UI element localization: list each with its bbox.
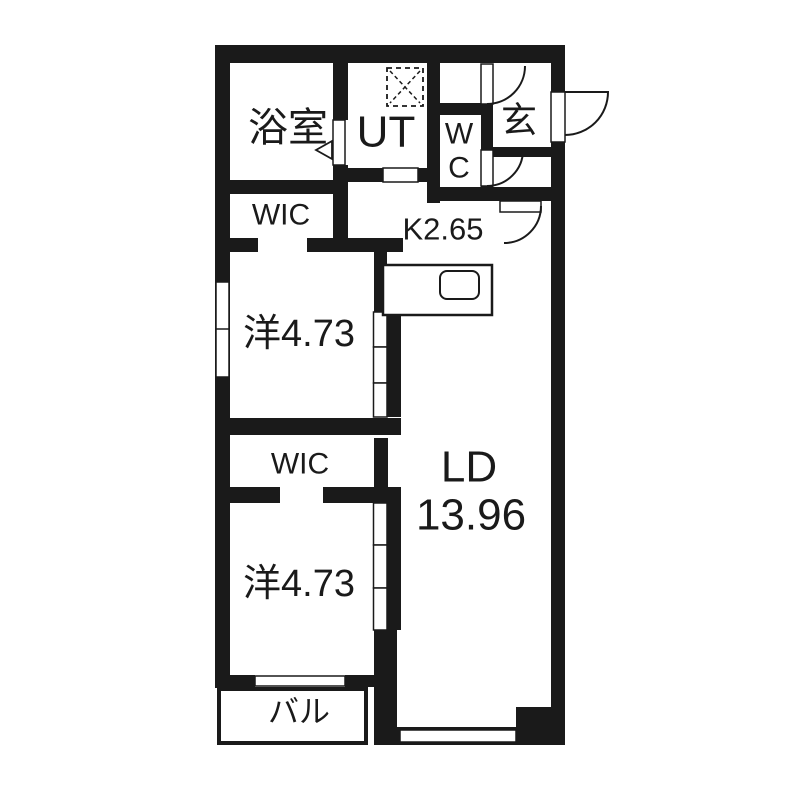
wall-ut-right [427,63,440,203]
toilet-label-c: C [448,152,470,185]
floor-plan-page: 浴室 UT W C 玄 K2.65 WIC 洋4.73 WIC LD 13.96… [0,0,800,800]
wall-room2-bottom-left [228,675,255,687]
hall-door-leaf [500,201,541,212]
wall-right-upper [551,45,565,92]
wall-closet-wc-divider [440,103,481,115]
kitchen-label: K2.65 [402,212,483,247]
wall-hall-bottom [427,187,565,201]
ld-bottom-window [400,730,516,742]
closet-door-leaf [481,64,493,104]
wall-top [215,45,565,63]
entrance-door-slab [551,92,565,142]
sliding-panel-upper-2 [374,347,388,383]
wic-upper-label: WIC [252,199,310,232]
wall-wc-right-mid [481,104,493,150]
wall-bath-ut-upper [333,63,348,120]
wall-room2-bottom-right [345,675,374,687]
living-dining-area: 13.96 [416,491,526,540]
living-dining-label: LD [441,443,497,492]
wall-mid-slide-upper [387,312,401,417]
western-room-lower-label: 洋4.73 [243,563,355,605]
kitchen-sink [440,271,479,299]
wall-ut-bottom-right [418,168,427,182]
wall-room1-top-left [228,238,258,252]
toilet-label-w: W [445,118,474,151]
wall-mid-slide-lower [387,503,401,630]
utility-label: UT [357,108,416,157]
balcony-window [255,676,345,686]
wall-wic-lower-bottom-right [323,487,401,503]
wall-right-lower [551,142,565,745]
wall-wic-lower-bottom-left [228,487,280,503]
wall-room1-top-right [307,238,403,252]
balcony-label: バル [268,695,330,730]
western-room-upper-label: 洋4.73 [243,313,355,355]
entrance-label: 玄 [501,100,537,141]
ut-door-opening [383,168,418,182]
wall-room1-bottom [228,418,401,435]
bathroom-door-leaf [333,120,345,165]
bathroom-label: 浴室 [248,106,328,150]
floor-plan-drawing: 浴室 UT W C 玄 K2.65 WIC 洋4.73 WIC LD 13.96… [0,0,800,800]
wic-lower-label: WIC [271,448,329,481]
wall-bottom-right-block [516,707,565,745]
sliding-panel-lower-2 [374,545,388,588]
sliding-panel-upper-1 [374,312,388,347]
wc-door-leaf [481,150,493,186]
wall-bath-bottom [228,180,348,194]
wall-mid-bottom [374,630,397,727]
wall-ut-bottom-left [348,168,383,182]
sliding-panel-upper-3 [374,383,388,417]
sliding-panel-lower-3 [374,588,388,630]
sliding-panel-lower-1 [374,503,388,545]
